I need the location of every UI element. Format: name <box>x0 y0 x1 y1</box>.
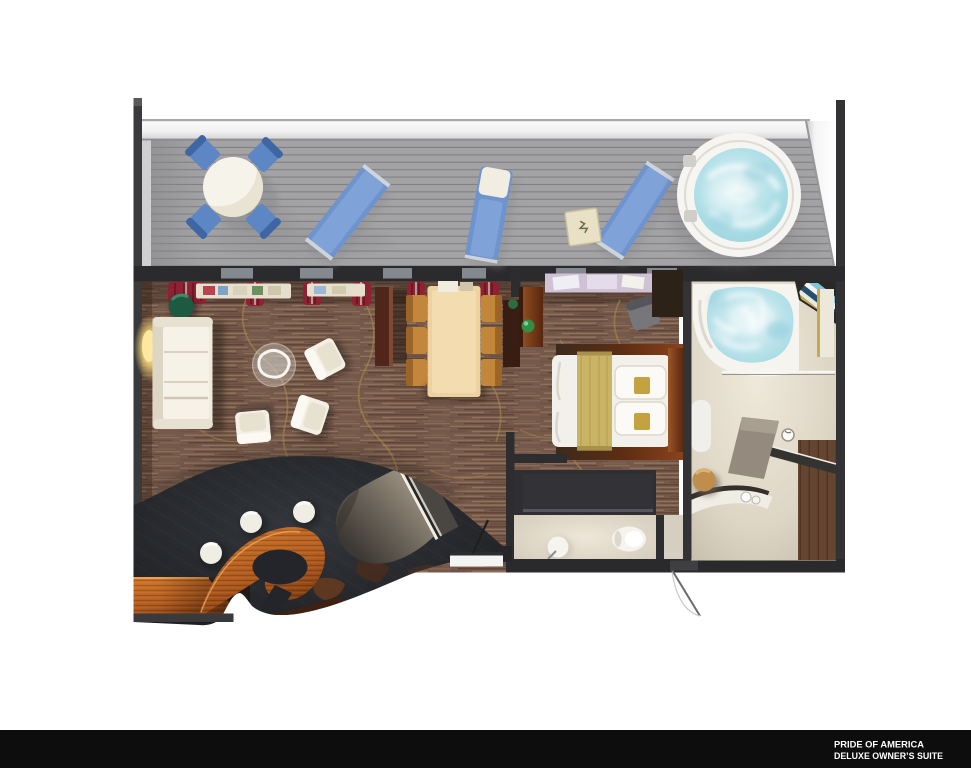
svg-text:DELUXE OWNER’S SUITE: DELUXE OWNER’S SUITE <box>834 751 943 761</box>
svg-text:PRIDE OF AMERICA: PRIDE OF AMERICA <box>834 740 924 750</box>
